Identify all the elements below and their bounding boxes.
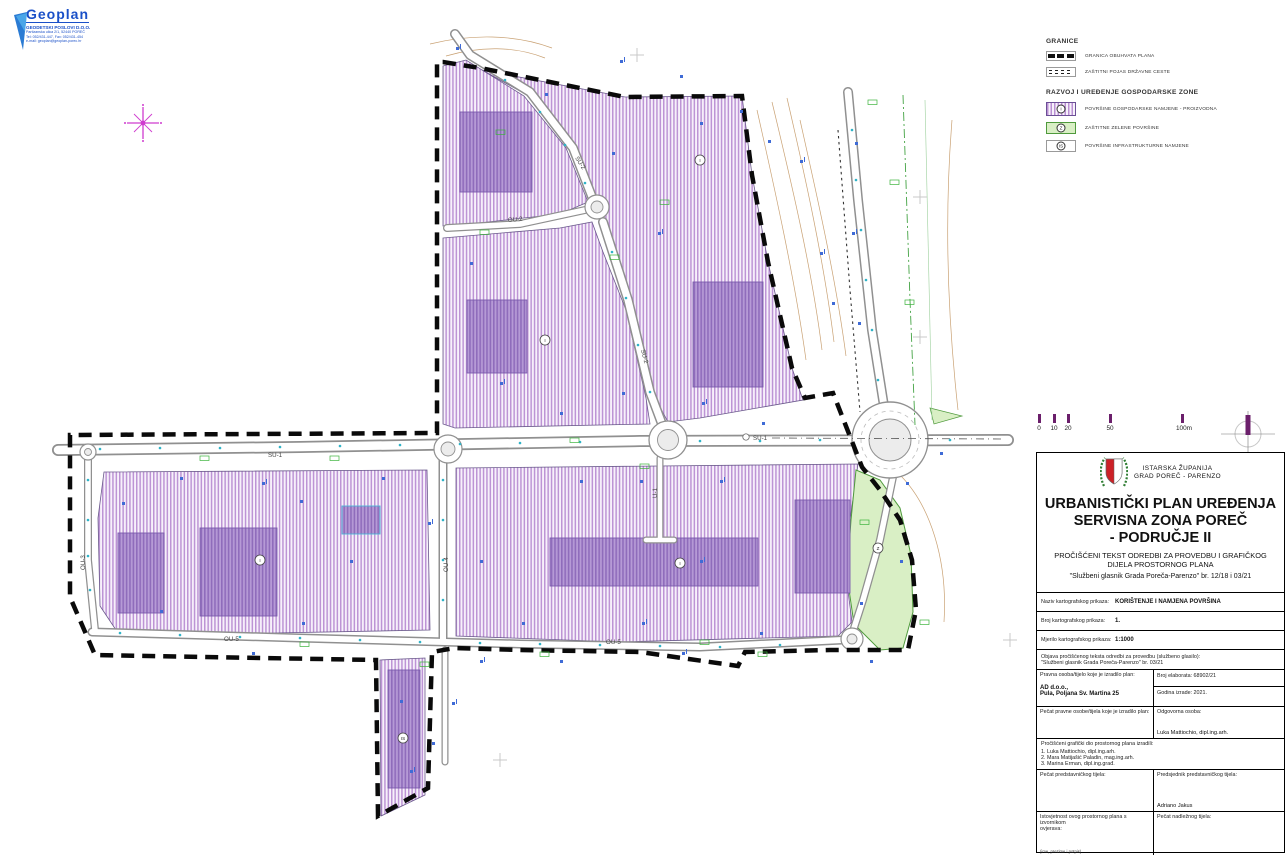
legend-heading-zones: RAZVOJ I UREĐENJE GOSPODARSKE ZONE (1046, 89, 1278, 96)
svg-text:I: I (679, 561, 680, 566)
zone-symbol: I (255, 555, 265, 565)
svg-text:I: I (699, 158, 700, 163)
plan-title: URBANISTIČKI PLAN UREĐENJA SERVISNA ZONA… (1037, 493, 1284, 548)
plan-subtitle: PROČIŠĆENI TEKST ODREDBI ZA PROVEDBU I G… (1037, 548, 1284, 592)
row-izradili: Pročišćeni grafički dio prostornog plana… (1037, 738, 1284, 769)
legend-item-production: I POVRŠINE GOSPODARSKE NAMJENE - PROIZVO… (1046, 102, 1278, 116)
green-swatch: Z (1046, 122, 1076, 134)
svg-text:I: I (544, 338, 545, 343)
zone-symbol: IS (398, 733, 408, 743)
title-block: ISTARSKA ŽUPANIJA GRAD POREČ - PARENZO U… (1036, 452, 1285, 853)
logo-address-3: e-mail: geoplan@geoplan-porec.hr (26, 39, 122, 44)
zone-symbol: I (675, 558, 685, 568)
road-label: SU-1 (753, 435, 768, 442)
county-name: ISTARSKA ŽUPANIJA (1134, 465, 1221, 473)
boundary-swatch (1046, 51, 1076, 61)
logo-name: Geoplan (26, 6, 89, 23)
title-block-header: ISTARSKA ŽUPANIJA GRAD POREČ - PARENZO (1037, 453, 1284, 493)
legend: GRANICE GRANICA OBUHVATA PLANA ZAŠTITNI … (1046, 38, 1278, 152)
coat-of-arms-icon (1100, 455, 1128, 491)
zone-symbol: Z (873, 543, 883, 553)
zone-symbol: I (540, 335, 550, 345)
responsible-person: Luka Mattiochio, dipl.ing.arh. (1157, 730, 1228, 736)
road-label: OU-4 (443, 557, 450, 572)
row-pravna: Pravna osoba/tijelo koje je izradilo pla… (1037, 669, 1284, 706)
road-label: OU-2 (508, 216, 524, 224)
roundabout-su2 (585, 195, 609, 219)
production-swatch: I (1046, 102, 1076, 116)
svg-text:I: I (259, 558, 260, 563)
roundabout-southeast (841, 628, 863, 650)
roundabout-central (649, 421, 687, 459)
zone-symbol: I (695, 155, 705, 165)
svg-text:Z: Z (877, 546, 880, 551)
roundabout-ou4 (434, 435, 462, 463)
legend-item-green: Z ZAŠTITNE ZELENE POVRŠINE (1046, 122, 1278, 134)
legend-item-protection: ZAŠTITNI POJAS DRŽAVNE CESTE (1046, 67, 1278, 77)
road-label: OU-3 (80, 555, 87, 570)
row-pecat-predstavnickog: Pečat predstavničkog tijela: Predsjednik… (1037, 769, 1284, 811)
row-objava: Objava pročišćenog teksta odredbi za pro… (1037, 649, 1284, 669)
scale-bar: 0 10 20 50 100m (1036, 414, 1206, 440)
row-naziv: Naziv kartografskog prikaza: KORIŠTENJE … (1037, 592, 1284, 611)
road-label-symbol (743, 434, 749, 440)
row-mjerilo: Mjerilo kartografskog prikaza: 1:1000 (1037, 630, 1284, 649)
legend-item-boundary: GRANICA OBUHVATA PLANA (1046, 51, 1278, 61)
signature-note: (ime, prezime i potpis) (1040, 849, 1081, 854)
north-star-icon (124, 104, 162, 142)
protection-swatch (1046, 67, 1076, 77)
plan-sheet: I I I I Z IS SU-1 SU-1 SU-2 SU-2 OU-2 OU… (0, 0, 1286, 855)
road-label: U-1 (652, 487, 659, 498)
gazette-reference: "Službeni glasnik Grada Poreča-Parenzo" … (1037, 572, 1284, 581)
geoplan-logo: Geoplan GEODETSKI POSLOVI D.O.O. Partiza… (26, 6, 122, 44)
row-broj: Broj kartografskog prikaza: 1. (1037, 611, 1284, 630)
road-label: OU-5 (606, 639, 621, 646)
svg-text:IS: IS (401, 736, 405, 741)
geoplan-flag-icon (14, 12, 28, 52)
legend-heading-borders: GRANICE (1046, 38, 1278, 45)
road-label: SU-1 (268, 452, 283, 459)
city-name: GRAD POREČ - PARENZO (1134, 473, 1221, 481)
corridor-lines (772, 95, 1002, 439)
row-pecat-pravne: Pečat pravne osobe/tijela koje je izradi… (1037, 706, 1284, 738)
president-name: Adriano Jakus (1157, 803, 1192, 809)
road-label: OU-5 (224, 636, 239, 643)
roundabout-west-small (80, 444, 96, 460)
row-istovjetnost: Istovjetnost ovog prostornog plana s izv… (1037, 811, 1284, 855)
compass-icon (1218, 408, 1278, 458)
infrastructure-swatch: IS (1046, 140, 1076, 152)
legend-item-infrastructure: IS POVRŠINE INFRASTRUKTURNE NAMJENE (1046, 140, 1278, 152)
